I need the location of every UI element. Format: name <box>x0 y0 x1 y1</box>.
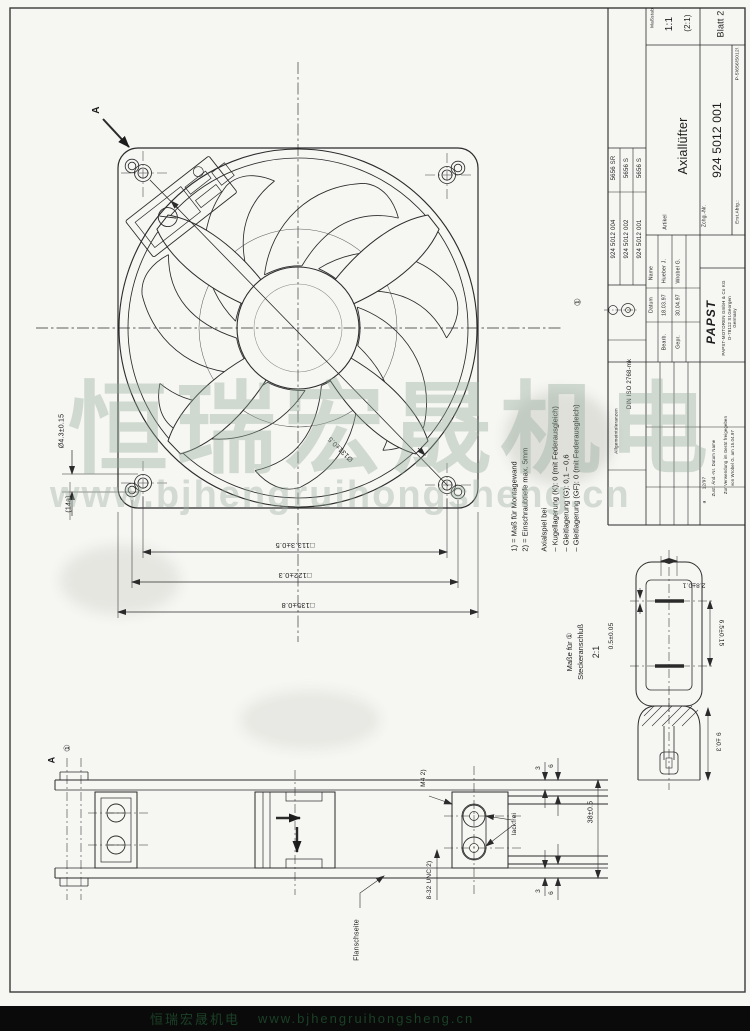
paintfree-label: lackfrei <box>512 813 519 835</box>
sheet-number: Blatt 2 <box>717 11 726 38</box>
detail-title-1: Maße für ① <box>565 624 576 680</box>
detail-dim-height: 9 ±0.3 <box>714 732 721 751</box>
scale-label: Maßstab <box>652 8 657 28</box>
sheet-frame <box>10 8 745 992</box>
front-dimensions <box>62 450 478 618</box>
notes-block: 1) = Maß für Montagewand 2) = Einschraub… <box>509 404 582 551</box>
detail-title-2: Steckeranschluß <box>576 624 587 680</box>
variant-1-type: 5656 S <box>624 158 630 178</box>
thread-unc-label: 8-32 UNC 2) <box>427 861 434 900</box>
dim-inner-label: □113.3±0.5 <box>275 541 314 549</box>
article-label: Artikel <box>664 214 669 229</box>
tolerance-value: DIN ISO 2768-mk <box>627 359 633 409</box>
note-axial-title: Axialspiel bei <box>539 404 550 551</box>
sign-row2-name: Wrobel G. <box>676 258 681 283</box>
note-ref-symbol: ① <box>574 298 583 306</box>
dim-mid-label: □122±0.3 <box>278 571 311 579</box>
bottom-bar-text-url: www.bjhengruihongsheng.cn <box>258 1011 474 1026</box>
bottom-bar-text-cn: 恒瑞宏晟机电 <box>150 1009 240 1028</box>
scale-value: 1:1 <box>665 17 675 32</box>
rev-cols: Zust. Änd.-Nr. Datum Name <box>712 440 716 497</box>
dept-value: P-5\656\5012\ <box>737 48 742 81</box>
detail-dim-width: 2.8±0.1 <box>682 581 705 588</box>
projection-symbol <box>604 304 638 317</box>
side-view <box>55 758 608 908</box>
variant-0-pn: 924 5012 004 <box>611 219 617 258</box>
bottom-bar: 恒瑞宏晟机电 www.bjhengruihongsheng.cn <box>0 1006 750 1031</box>
drawing-canvas <box>0 0 750 1031</box>
variant-0-type: 5656 SR <box>611 156 617 181</box>
company-line1: PAPST-MOTOREN GmbH & Co KG <box>722 280 726 355</box>
scale-alt-value: (2:1) <box>684 14 692 31</box>
drawing-number: 924 5012 001 <box>711 102 723 178</box>
detail-dim-thickness: 0.5±0.05 <box>609 623 616 650</box>
sign-row1-role: Bearb. <box>662 334 667 350</box>
rev-note2: von Wrobel G. am 15.04.97 <box>731 430 735 486</box>
detail-title-block: Maße für ① Steckeranschluß 2:1 <box>565 624 603 680</box>
note-bearing-2: – Gleitlagerung (G): 0,1 – 0,6 <box>561 404 572 551</box>
sign-row1-date: 18.03.97 <box>662 294 667 316</box>
variant-1-pn: 924 5012 002 <box>624 219 630 258</box>
tolerance-label: Allgemeintoleranzen <box>615 408 620 453</box>
depth-dim-label: 38±0.5 <box>588 801 595 824</box>
view-a-arrow <box>103 119 129 147</box>
note-1: 1) = Maß für Montagewand <box>509 404 520 551</box>
dim-outer-label: □135±0.8 <box>281 601 314 609</box>
rev-zust: a <box>703 501 708 504</box>
note-bearing-1: – Kugellagerung (K): 0 (mit Federausglei… <box>550 404 561 551</box>
article-name: Axiallüfter <box>677 117 690 174</box>
detail-dim-spacing: 6.5±0.15 <box>717 620 724 647</box>
variant-2-type: 5656 S <box>637 158 643 178</box>
engineering-drawing-sheet: A Ø131±0.5 □113.3±0.5 □122±0.3 □135±0.8 … <box>0 0 750 1031</box>
sign-row2-date: 30.04.97 <box>676 294 681 316</box>
company-logo: PAPST <box>705 300 717 344</box>
sign-name-header: Name <box>650 266 655 280</box>
front-view <box>36 62 562 642</box>
hole-dim-label: Ø4.3±0.15 <box>59 414 66 448</box>
sign-row1-name: Hueber J. <box>662 259 667 283</box>
sign-row2-role: Gepr. <box>676 335 681 349</box>
drawing-number-label: Zchg.-Nr. <box>703 205 708 227</box>
dim3-bottom: 3 <box>536 889 543 893</box>
note-bearing-3: – Gleitlagerung (GF): 0 (mit Federausgle… <box>572 404 583 551</box>
dim6-bottom: 6 <box>549 891 556 895</box>
ref-dim-label: (14a) <box>66 495 73 512</box>
rev-aend: 12/97 <box>703 477 708 490</box>
rev-note1: Zur Verwendung im Gerät freigegeben <box>724 416 728 494</box>
view-a-label: A <box>92 106 102 113</box>
thread-m4-label: M4 2) <box>421 769 428 787</box>
company-line3: Germany <box>733 308 737 327</box>
dim3-top: 3 <box>536 766 543 770</box>
detail-scale: 2:1 <box>590 624 603 680</box>
flange-side-label: Flanschseite <box>354 919 361 961</box>
note-2: 2) = Einschraubtiefe max. 5mm <box>520 404 531 551</box>
side-note-ref: ① <box>63 744 72 752</box>
dim6-top: 6 <box>549 764 556 768</box>
sign-datum-header: Datum <box>650 297 655 313</box>
dept-label: Erst.Abtg.: <box>736 200 741 224</box>
side-view-a-label: A <box>48 757 57 764</box>
variant-2-pn: 924 5012 001 <box>637 219 643 258</box>
